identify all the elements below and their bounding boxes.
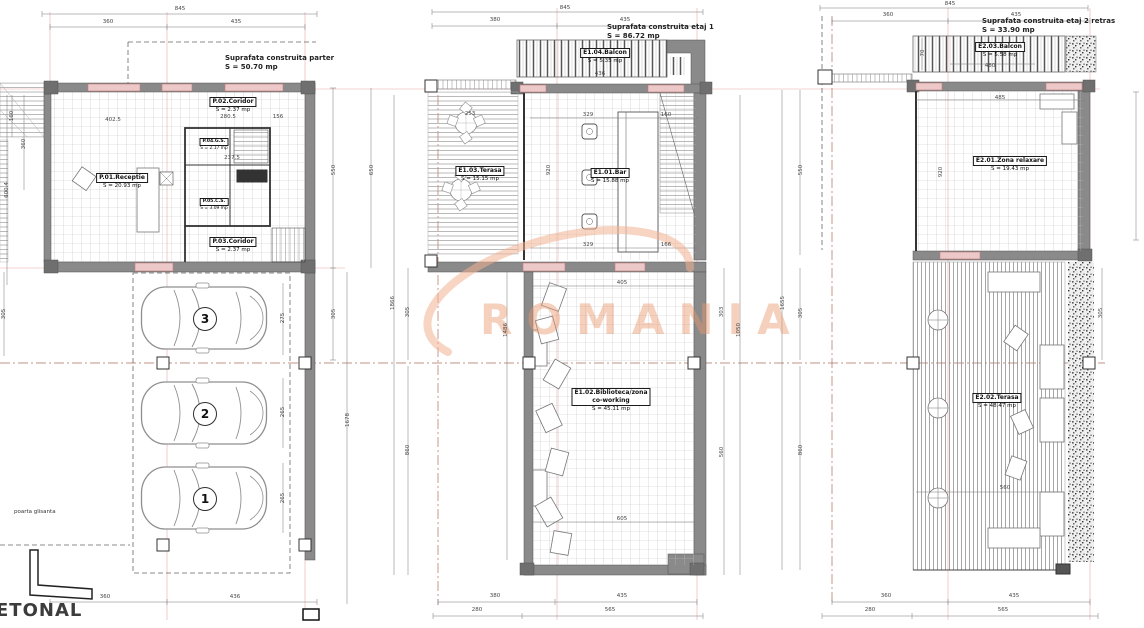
dim: 402.5: [105, 117, 121, 123]
room-receptie-area: S = 20.93 mp: [96, 183, 148, 190]
dim: 265: [280, 407, 286, 418]
dim: 436: [595, 71, 606, 77]
room-biblioteca-name: E1.02.Biblioteca/zonaco-working: [571, 388, 650, 406]
dim: 435: [1011, 12, 1022, 18]
dim: 845: [175, 6, 186, 12]
dim: 275: [280, 313, 286, 324]
room-biblioteca-area: S = 45.11 mp: [571, 406, 650, 413]
dim: 237.5: [224, 155, 240, 161]
dim: 360: [21, 139, 27, 150]
room-coridor1-name: P.02.Coridor: [209, 97, 256, 107]
etaj1-railing: [428, 80, 516, 89]
etaj2-railing: [822, 74, 912, 82]
etaj2-area-note-line1: Suprafata construita etaj 2 retras: [982, 17, 1115, 25]
dim: 305: [1, 309, 7, 320]
room-relaxare-area: S = 19.43 mp: [973, 166, 1047, 173]
etaj1-balcony-slats2: [670, 57, 686, 75]
dim: 360: [883, 12, 894, 18]
room-balcon2-name: E2.03.Balcon: [975, 42, 1025, 52]
room-label-receptie: P.01.Receptie S = 20.93 mp: [96, 173, 148, 190]
room-coridor1-area: S = 2.37 mp: [209, 107, 256, 114]
dim: 1678: [345, 413, 351, 427]
room-label-coridor1: P.02.Coridor S = 2.37 mp: [209, 97, 256, 114]
dim: 480: [985, 63, 996, 69]
room-label-terasa2: E2.02.Terasa S = 48.47 mp: [972, 393, 1021, 410]
room-label-balcon1: E1.04.Balcon S = 5.35 mp: [580, 48, 630, 65]
dim: 920: [546, 165, 552, 176]
room-terasa2-area: S = 48.47 mp: [972, 403, 1021, 410]
parking-spot-number-3: 3: [193, 307, 217, 331]
dim: 303: [719, 307, 725, 318]
dim: 560: [1000, 485, 1011, 491]
room-bar-name: E1.01.Bar: [591, 168, 630, 178]
dim: 329: [583, 242, 594, 248]
dim: 305: [331, 309, 337, 320]
room-balcon1-area: S = 5.35 mp: [580, 58, 630, 65]
dim: 860: [405, 445, 411, 456]
etaj2-area-note: Suprafata construita etaj 2 retras S = 3…: [982, 17, 1115, 36]
plan-parter: [0, 11, 371, 620]
parter-area-note-line1: Suprafata construita parter: [225, 54, 334, 62]
room-gs-area: S = 2.17 mp: [200, 146, 229, 152]
room-balcon1-name: E1.04.Balcon: [580, 48, 630, 58]
dim: 360: [100, 594, 111, 600]
dim: 1655: [780, 296, 786, 310]
room-coridor2-area: S = 2.37 mp: [209, 247, 256, 254]
plan-etaj2: [782, 5, 1139, 619]
dim: 305: [405, 307, 411, 318]
dim: 156: [273, 114, 284, 120]
room-label-terasa1: E1.03.Terasa S = 15.15 mp: [455, 166, 504, 183]
room-gs-name: P.04.G.S.: [200, 138, 229, 146]
room-label-cs: P.05.C.S. S = 3.09 mp: [200, 198, 229, 212]
dim: 360: [103, 19, 114, 25]
dim: 1050: [736, 323, 742, 337]
dim: 360: [881, 593, 892, 599]
dim: 436: [230, 594, 241, 600]
dim: 166: [661, 242, 672, 248]
dim: 920: [938, 167, 944, 178]
dim: 329: [583, 112, 594, 118]
room-relaxare-name: E2.01.Zona relaxare: [973, 156, 1047, 166]
room-terasa1-name: E1.03.Terasa: [455, 166, 504, 176]
dim: 305: [798, 308, 804, 319]
dim: 550: [798, 165, 804, 176]
dim: 435: [617, 593, 628, 599]
room-biblioteca-name-line2: co-working: [592, 397, 629, 404]
etaj2-balcony-hatch: [1066, 36, 1096, 72]
room-label-coridor2: P.03.Coridor S = 2.37 mp: [209, 237, 256, 254]
parking-spot-number-2: 2: [193, 402, 217, 426]
dim: 560: [719, 447, 725, 458]
dim: 650: [369, 165, 375, 176]
dim: 550: [331, 165, 337, 176]
dim: 605: [617, 516, 628, 522]
dim: 305: [1098, 308, 1104, 319]
watermark-text: ROMANIA: [480, 295, 804, 344]
dim: 845: [560, 5, 571, 11]
room-balcon2-area: S = 5.58 mp: [975, 52, 1025, 59]
etaj1-area-note-line1: Suprafata construita etaj 1: [607, 23, 714, 31]
room-label-bar: E1.01.Bar S = 15.88 mp: [591, 168, 630, 185]
etaj2-terrace-hatch: [1068, 262, 1094, 562]
dim: 600.4: [4, 182, 10, 198]
etaj2-area-note-line2: S = 33.90 mp: [982, 26, 1035, 34]
room-cs-area: S = 3.09 mp: [200, 206, 229, 212]
parter-area-note-line2: S = 50.70 mp: [225, 63, 278, 71]
dim: 565: [605, 607, 616, 613]
etaj1-stairs: [660, 93, 694, 213]
dim: 280: [472, 607, 483, 613]
parking-spot-number-1: 1: [193, 487, 217, 511]
dim: 253: [465, 111, 476, 117]
dim: 845: [945, 1, 956, 7]
dim: 265: [280, 493, 286, 504]
gate-wall: [30, 550, 92, 599]
dim: 1866: [390, 296, 396, 310]
dim: 435: [1009, 593, 1020, 599]
room-terasa1-area: S = 15.15 mp: [455, 176, 504, 183]
dim: 380: [490, 593, 501, 599]
room-cs-name: P.05.C.S.: [200, 198, 229, 206]
dim: 70: [920, 50, 926, 57]
dim: 1486: [503, 323, 509, 337]
dim: 435: [620, 17, 631, 23]
room-coridor2-name: P.03.Coridor: [209, 237, 256, 247]
dim: 280.5: [220, 114, 236, 120]
room-bar-area: S = 15.88 mp: [591, 178, 630, 185]
dim: 565: [998, 607, 1009, 613]
gate-label: poarta glisanta: [14, 509, 56, 515]
room-label-gs: P.04.G.S. S = 2.17 mp: [200, 138, 229, 152]
parter-area-note: Suprafata construita parter S = 50.70 mp: [225, 54, 334, 73]
street-label: ETONAL: [0, 600, 82, 621]
dim: 485: [995, 95, 1006, 101]
dim: 860: [798, 445, 804, 456]
dim: 405: [617, 280, 628, 286]
room-terasa2-name: E2.02.Terasa: [972, 393, 1021, 403]
dim: 280: [865, 607, 876, 613]
parter-deck-hatch: [0, 83, 44, 262]
etaj1-area-note-line2: S = 86.72 mp: [607, 32, 660, 40]
dim: 160: [661, 112, 672, 118]
etaj1-area-note: Suprafata construita etaj 1 S = 86.72 mp: [607, 23, 714, 42]
room-biblioteca-name-line1: E1.02.Biblioteca/zona: [574, 389, 647, 396]
architectural-floor-plan-sheet: ROMANIA Suprafata construita parter S = …: [0, 0, 1144, 628]
room-label-balcon2: E2.03.Balcon S = 5.58 mp: [975, 42, 1025, 59]
room-receptie-name: P.01.Receptie: [96, 173, 148, 183]
room-label-relaxare: E2.01.Zona relaxare S = 19.43 mp: [973, 156, 1047, 173]
room-label-biblioteca: E1.02.Biblioteca/zonaco-working S = 45.1…: [571, 388, 650, 413]
dim: 435: [231, 19, 242, 25]
dim: 380: [490, 17, 501, 23]
dim: 160: [9, 111, 15, 122]
